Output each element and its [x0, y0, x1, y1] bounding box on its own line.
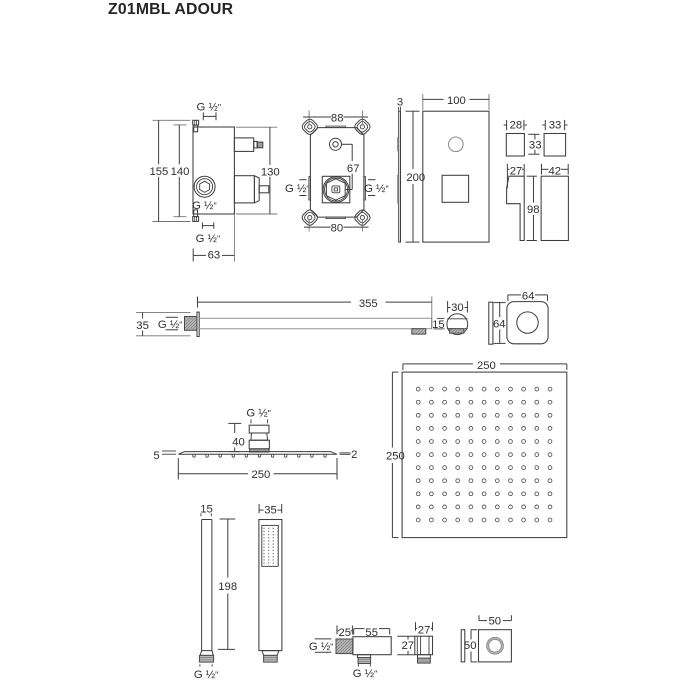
svg-text:Z01MBL ADOUR: Z01MBL ADOUR — [108, 1, 234, 18]
svg-text:G ½": G ½" — [192, 200, 217, 212]
svg-text:G ½": G ½" — [285, 183, 310, 195]
svg-text:27: 27 — [402, 640, 415, 652]
svg-text:250: 250 — [251, 469, 270, 481]
svg-text:G ½": G ½" — [197, 102, 222, 114]
svg-text:67: 67 — [347, 163, 360, 175]
svg-text:3: 3 — [397, 96, 403, 108]
svg-text:G ½": G ½" — [158, 319, 183, 331]
svg-text:50: 50 — [464, 640, 477, 652]
svg-text:G ½": G ½" — [364, 183, 389, 195]
svg-text:2: 2 — [351, 449, 357, 461]
svg-text:15: 15 — [432, 319, 445, 331]
svg-text:35: 35 — [136, 320, 149, 332]
svg-text:27: 27 — [510, 166, 523, 178]
svg-text:200: 200 — [406, 172, 425, 184]
svg-text:28: 28 — [510, 120, 523, 132]
svg-text:88: 88 — [331, 112, 344, 124]
svg-text:40: 40 — [232, 436, 245, 448]
svg-text:G ½": G ½" — [196, 233, 221, 245]
svg-text:198: 198 — [218, 581, 237, 593]
svg-text:64: 64 — [522, 290, 535, 302]
svg-text:98: 98 — [527, 204, 540, 216]
svg-text:130: 130 — [261, 166, 280, 178]
svg-text:G ½": G ½" — [246, 408, 271, 420]
svg-text:80: 80 — [331, 223, 344, 235]
svg-text:250: 250 — [477, 360, 496, 372]
svg-text:G ½": G ½" — [353, 668, 378, 680]
svg-text:27: 27 — [418, 624, 431, 636]
svg-text:64: 64 — [493, 319, 506, 331]
svg-text:G ½": G ½" — [194, 669, 219, 680]
svg-text:355: 355 — [359, 298, 378, 310]
svg-text:42: 42 — [549, 166, 562, 178]
svg-text:35: 35 — [264, 505, 277, 517]
svg-text:25: 25 — [339, 627, 352, 639]
svg-text:30: 30 — [451, 302, 464, 314]
svg-text:5: 5 — [153, 450, 159, 462]
svg-text:33: 33 — [529, 140, 542, 152]
svg-text:33: 33 — [549, 120, 562, 132]
svg-text:50: 50 — [489, 616, 502, 628]
svg-text:63: 63 — [208, 249, 221, 261]
svg-text:55: 55 — [365, 627, 378, 639]
svg-text:G ½": G ½" — [309, 641, 334, 653]
svg-text:155: 155 — [149, 166, 168, 178]
svg-text:250: 250 — [386, 451, 405, 463]
svg-text:140: 140 — [171, 166, 190, 178]
svg-text:100: 100 — [447, 95, 466, 107]
